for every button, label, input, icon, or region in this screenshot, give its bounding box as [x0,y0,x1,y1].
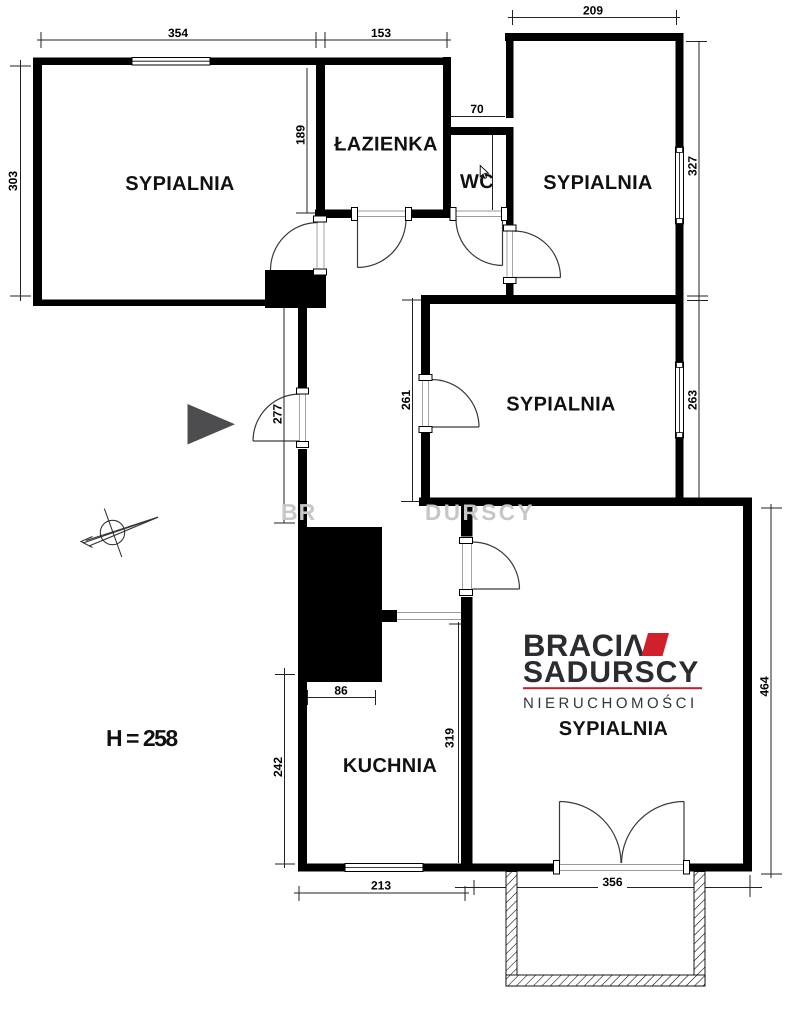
svg-text:213: 213 [371,879,391,893]
svg-text:KUCHNIA: KUCHNIA [343,755,437,777]
svg-text:277: 277 [271,404,285,424]
svg-text:303: 303 [6,171,20,191]
svg-text:SYPIALNIA: SYPIALNIA [506,394,615,416]
svg-text:SYPIALNIA: SYPIALNIA [125,173,234,195]
svg-text:189: 189 [294,125,308,145]
svg-text:NIERUCHOMOŚCI: NIERUCHOMOŚCI [523,694,698,712]
svg-text:319: 319 [443,728,457,748]
svg-text:70: 70 [470,102,484,116]
svg-text:261: 261 [399,390,413,410]
svg-text:BR: BR [281,499,316,525]
svg-text:464: 464 [758,676,772,696]
svg-text:327: 327 [686,156,700,176]
svg-text:354: 354 [168,26,188,40]
svg-text:SYPIALNIA: SYPIALNIA [543,172,652,194]
svg-text:SADURSCY: SADURSCY [523,656,699,689]
svg-text:153: 153 [371,26,391,40]
svg-text:ŁAZIENKA: ŁAZIENKA [334,134,438,156]
svg-text:356: 356 [602,875,622,889]
svg-text:263: 263 [686,390,700,410]
svg-text:SYPIALNIA: SYPIALNIA [559,718,668,740]
svg-text:H = 258: H = 258 [106,725,178,751]
svg-text:WC: WC [460,171,494,193]
svg-text:209: 209 [583,4,603,18]
svg-text:242: 242 [271,757,285,777]
svg-text:DURSCY: DURSCY [425,500,535,525]
svg-text:86: 86 [334,684,348,698]
